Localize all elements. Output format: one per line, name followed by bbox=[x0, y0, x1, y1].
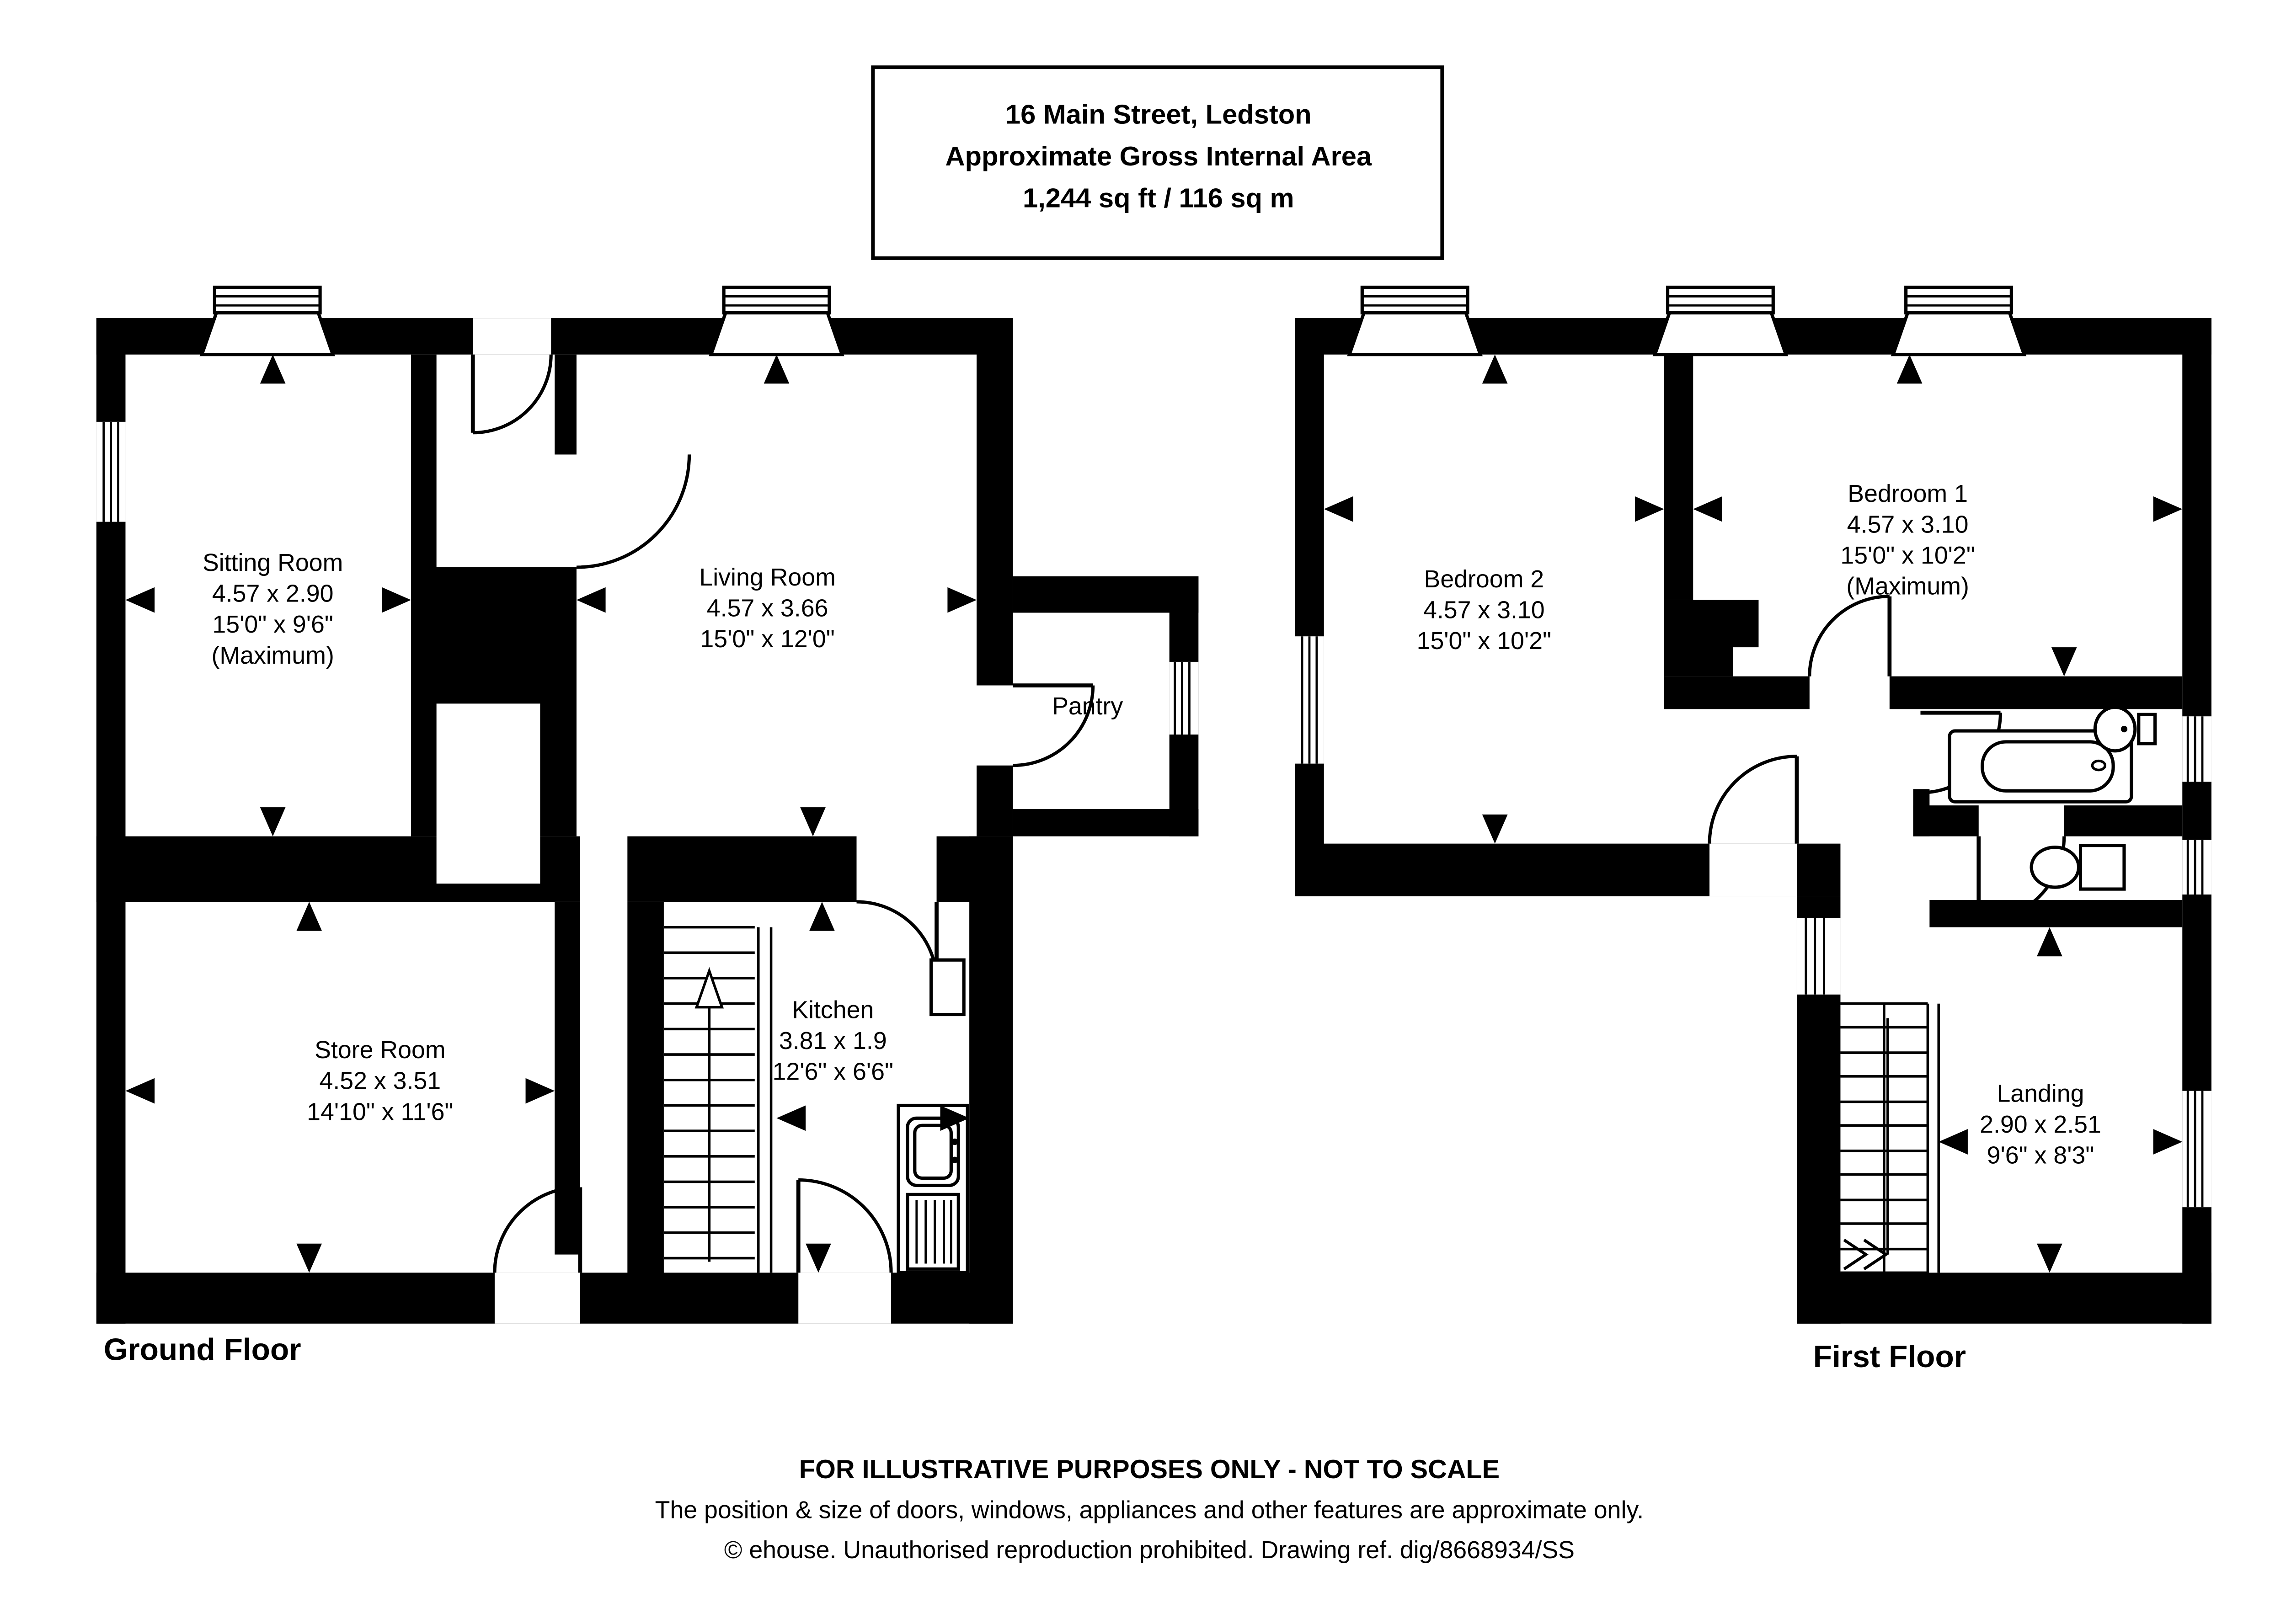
svg-text:Kitchen: Kitchen bbox=[792, 996, 874, 1024]
svg-text:(Maximum): (Maximum) bbox=[1846, 573, 1969, 600]
svg-text:(Maximum): (Maximum) bbox=[211, 642, 334, 669]
title-box: 16 Main Street, Ledston Approximate Gros… bbox=[873, 67, 1442, 258]
svg-text:15'0" x 10'2": 15'0" x 10'2" bbox=[1417, 627, 1551, 655]
svg-text:Landing: Landing bbox=[1997, 1080, 2084, 1107]
footer-disclaimer: FOR ILLUSTRATIVE PURPOSES ONLY - NOT TO … bbox=[655, 1455, 1644, 1564]
svg-text:4.57 x 3.10: 4.57 x 3.10 bbox=[1423, 596, 1545, 623]
svg-text:2.90 x 2.51: 2.90 x 2.51 bbox=[1980, 1111, 2101, 1138]
svg-text:Store Room: Store Room bbox=[315, 1036, 445, 1064]
svg-text:12'6" x 6'6": 12'6" x 6'6" bbox=[773, 1058, 894, 1086]
footer-line3: © ehouse. Unauthorised reproduction proh… bbox=[724, 1536, 1575, 1564]
svg-text:14'10" x 11'6": 14'10" x 11'6" bbox=[307, 1098, 453, 1125]
window-wc-right bbox=[2182, 840, 2211, 895]
window-bedroom2-left bbox=[1295, 636, 1324, 763]
sink-unit bbox=[898, 1105, 967, 1273]
title-subtitle: Approximate Gross Internal Area bbox=[945, 141, 1372, 171]
svg-text:15'0" x 10'2": 15'0" x 10'2" bbox=[1840, 542, 1975, 569]
bay-window bbox=[711, 287, 842, 354]
room-label-store-room: Store Room 4.52 x 3.51 14'10" x 11'6" bbox=[307, 1036, 453, 1125]
title-address: 16 Main Street, Ledston bbox=[1005, 99, 1312, 129]
svg-text:Sitting Room: Sitting Room bbox=[203, 549, 343, 576]
svg-text:15'0" x 9'6": 15'0" x 9'6" bbox=[212, 611, 333, 638]
floorplan-svg: 16 Main Street, Ledston Approximate Gros… bbox=[0, 0, 2286, 1615]
title-area: 1,244 sq ft / 116 sq m bbox=[1023, 182, 1294, 213]
svg-text:3.81 x 1.9: 3.81 x 1.9 bbox=[779, 1027, 887, 1054]
window-sitting-left bbox=[96, 422, 126, 522]
svg-text:4.57 x 3.10: 4.57 x 3.10 bbox=[1847, 511, 1969, 538]
floor-label-ground: Ground Floor bbox=[104, 1332, 301, 1367]
bay-window bbox=[1893, 287, 2024, 354]
wash-basin bbox=[2095, 707, 2155, 751]
svg-text:9'6" x 8'3": 9'6" x 8'3" bbox=[1987, 1142, 2094, 1169]
svg-text:Living Room: Living Room bbox=[699, 564, 835, 591]
footer-line2: The position & size of doors, windows, a… bbox=[655, 1496, 1644, 1523]
svg-text:Bedroom 2: Bedroom 2 bbox=[1424, 565, 1544, 593]
svg-text:4.52 x 3.51: 4.52 x 3.51 bbox=[320, 1067, 441, 1095]
svg-text:15'0" x 12'0": 15'0" x 12'0" bbox=[700, 625, 834, 653]
bay-window bbox=[202, 287, 333, 354]
window-pantry-right bbox=[1170, 662, 1199, 735]
footer-line1: FOR ILLUSTRATIVE PURPOSES ONLY - NOT TO … bbox=[799, 1455, 1500, 1484]
bay-window bbox=[1349, 287, 1480, 354]
svg-text:4.57 x 3.66: 4.57 x 3.66 bbox=[707, 594, 828, 622]
store-room-right-wall bbox=[555, 902, 580, 1255]
window-landing-right bbox=[2182, 1091, 2211, 1208]
window-bathroom-right bbox=[2182, 716, 2211, 782]
svg-text:4.57 x 2.90: 4.57 x 2.90 bbox=[212, 580, 334, 607]
room-label-pantry: Pantry bbox=[1052, 692, 1123, 720]
room-label-living-room: Living Room 4.57 x 3.66 15'0" x 12'0" bbox=[699, 564, 835, 653]
boiler-unit bbox=[931, 960, 964, 1014]
window-landing-left bbox=[1797, 918, 1840, 995]
svg-text:Pantry: Pantry bbox=[1052, 692, 1123, 720]
bay-window bbox=[1655, 287, 1786, 354]
room-label-bedroom2: Bedroom 2 4.57 x 3.10 15'0" x 10'2" bbox=[1417, 565, 1551, 655]
room-label-landing: Landing 2.90 x 2.51 9'6" x 8'3" bbox=[1980, 1080, 2101, 1169]
svg-text:Bedroom 1: Bedroom 1 bbox=[1848, 480, 1968, 507]
floor-label-first: First Floor bbox=[1813, 1340, 1966, 1374]
